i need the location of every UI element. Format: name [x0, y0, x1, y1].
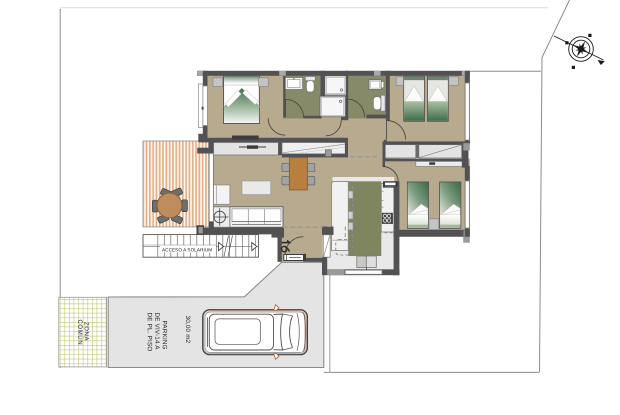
svg-text:30,00 m2: 30,00 m2	[184, 315, 191, 343]
svg-text:DE VIV-14 A: DE VIV-14 A	[153, 312, 160, 350]
svg-text:COMÚN: COMÚN	[76, 319, 84, 345]
svg-text:DE PL. PISO: DE PL. PISO	[146, 312, 153, 351]
svg-text:PARKING: PARKING	[161, 320, 168, 349]
svg-text:ZONA: ZONA	[83, 322, 90, 341]
svg-text:ACCESO A SOLARIUM: ACCESO A SOLARIUM	[162, 247, 212, 252]
